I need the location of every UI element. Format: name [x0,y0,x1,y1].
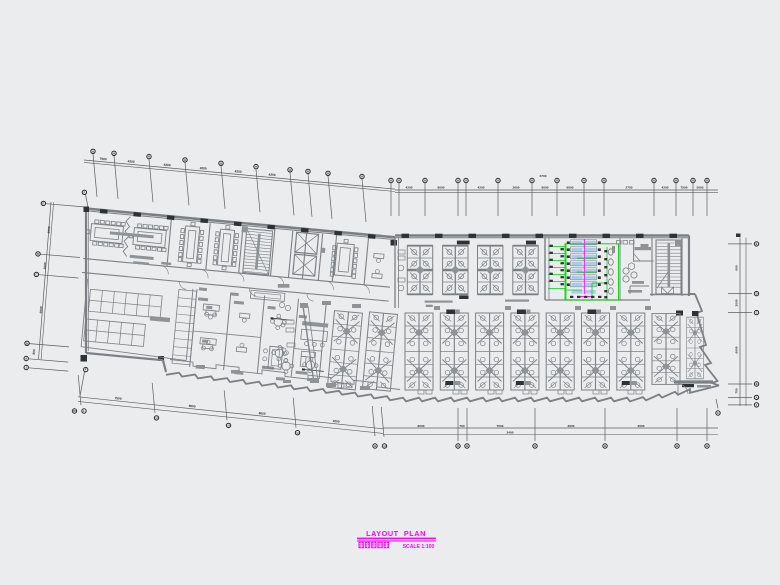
svg-text:3000: 3000 [638,424,645,428]
svg-text:8000: 8000 [258,411,266,416]
svg-text:5000: 5000 [697,186,704,190]
svg-text:A: A [25,357,27,361]
svg-text:7500: 7500 [99,157,107,162]
svg-text:800: 800 [32,349,36,355]
svg-text:750: 750 [735,388,739,393]
svg-text:B: B [26,341,28,345]
svg-text:H: H [148,155,150,159]
svg-text:H: H [327,171,329,175]
svg-text:H: H [604,444,606,448]
svg-text:6000: 6000 [567,186,574,190]
svg-text:4200: 4200 [332,419,340,424]
svg-text:4200: 4200 [478,186,485,190]
svg-text:4200: 4200 [234,169,242,174]
svg-text:4200: 4200 [163,163,171,168]
svg-text:H: H [374,444,376,448]
svg-text:2000: 2000 [43,262,48,269]
svg-text:H: H [390,179,392,183]
svg-text:2600: 2600 [513,186,520,190]
svg-text:H: H [706,444,708,448]
svg-text:D: D [37,252,39,256]
svg-text:H: H [307,170,309,174]
svg-text:7500: 7500 [497,424,504,428]
svg-text:700: 700 [459,424,464,428]
svg-text:H: H [653,179,655,183]
svg-text:8000: 8000 [542,186,549,190]
svg-text:B: B [756,382,758,386]
svg-text:H: H [297,431,299,435]
svg-text:LAYOUT PLAN: LAYOUT PLAN [366,529,426,538]
svg-text:4200: 4200 [406,186,413,190]
svg-text:H: H [465,179,467,183]
svg-text:M: M [73,409,75,413]
svg-text:H: H [497,179,499,183]
svg-text:2700: 2700 [540,174,547,178]
svg-text:H: H [531,179,533,183]
svg-text:6000: 6000 [735,346,739,353]
svg-text:H: H [457,444,459,448]
svg-text:C: C [756,311,758,315]
svg-text:H: H [556,179,558,183]
svg-text:8000: 8000 [188,404,196,409]
svg-text:H: H [228,424,230,428]
svg-text:4200: 4200 [199,166,207,171]
svg-text:D: D [756,292,758,296]
svg-text:H: H [676,444,678,448]
svg-text:H: H [156,416,158,420]
svg-text:H: H [184,158,186,162]
svg-text:4200: 4200 [662,186,669,190]
svg-text:7500: 7500 [114,396,122,401]
svg-text:4200: 4200 [268,172,276,177]
svg-text:E: E [756,242,758,246]
svg-text:6000: 6000 [39,306,44,313]
svg-text:2600: 2600 [568,424,575,428]
svg-text:H: H [692,179,694,183]
svg-text:2000: 2000 [735,299,739,306]
svg-text:7500: 7500 [681,186,688,190]
svg-text:H: H [384,444,386,448]
svg-text:H: H [113,151,115,155]
svg-text:E: E [43,202,45,206]
svg-text:C: C [35,273,37,277]
svg-text:A: A [756,396,758,400]
svg-text:H: H [289,168,291,172]
svg-text:2700: 2700 [626,186,633,190]
svg-text:H: H [583,179,585,183]
svg-text:H: H [255,165,257,169]
svg-text:8000: 8000 [418,424,425,428]
svg-text:H: H [534,444,536,448]
svg-text:6000: 6000 [47,226,52,233]
svg-text:H: H [361,175,363,179]
svg-text:H: H [706,179,708,183]
svg-text:H: H [398,179,400,183]
svg-text:H: H [92,149,94,153]
svg-text:H: H [457,179,459,183]
svg-text:4200: 4200 [127,159,135,164]
svg-text:2400: 2400 [507,430,514,434]
svg-text:8000: 8000 [438,186,445,190]
svg-text:600: 600 [735,265,739,270]
svg-text:H: H [675,179,677,183]
svg-text:H: H [220,161,222,165]
svg-text:H: H [466,444,468,448]
svg-text:H: H [603,179,605,183]
svg-text:SCALE 1:100: SCALE 1:100 [403,544,435,550]
svg-text:H: H [424,179,426,183]
